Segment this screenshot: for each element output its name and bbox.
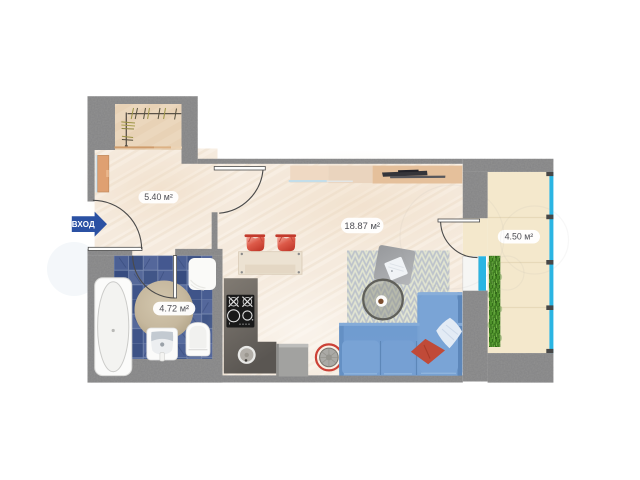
- svg-text:4.72 м²: 4.72 м²: [159, 304, 189, 314]
- svg-text:4.50 м²: 4.50 м²: [505, 232, 534, 242]
- svg-text:ВХОД: ВХОД: [72, 220, 95, 229]
- svg-text:18.87 м²: 18.87 м²: [344, 220, 380, 231]
- svg-text:5.40 м²: 5.40 м²: [144, 192, 173, 202]
